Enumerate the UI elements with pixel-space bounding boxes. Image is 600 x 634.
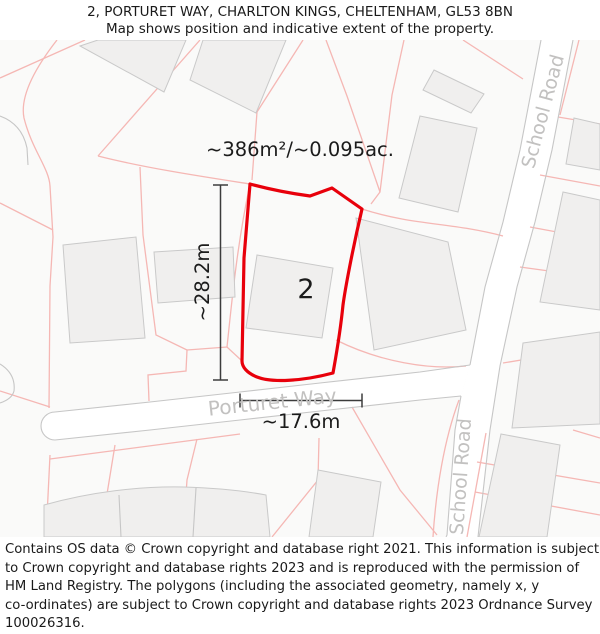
property-map: ~386m²/~0.095ac. 2 ~28.2m ~17.6m Porture…: [0, 40, 600, 537]
building: [63, 237, 145, 343]
building: [540, 192, 600, 310]
property-address-title: 2, PORTURET WAY, CHARLTON KINGS, CHELTEN…: [0, 0, 600, 21]
copyright-line: co-ordinates) are subject to Crown copyr…: [5, 597, 594, 616]
copyright-line: HM Land Registry. The polygons (includin…: [5, 578, 594, 597]
building: [479, 434, 560, 537]
map-subtitle: Map shows position and indicative extent…: [0, 21, 600, 38]
building: [44, 487, 270, 537]
map-title-header: 2, PORTURET WAY, CHARLTON KINGS, CHELTEN…: [0, 0, 600, 40]
plot-number-label: 2: [297, 274, 314, 305]
building: [356, 218, 466, 350]
copyright-footer: Contains OS data © Crown copyright and d…: [0, 537, 600, 625]
copyright-line: to Crown copyright and database rights 2…: [5, 560, 594, 579]
building: [190, 40, 286, 113]
building: [80, 40, 186, 92]
building: [566, 118, 600, 170]
copyright-line: Contains OS data © Crown copyright and d…: [5, 541, 594, 560]
plot-building: [246, 255, 333, 338]
map-canvas: ~386m²/~0.095ac. 2 ~28.2m ~17.6m Porture…: [0, 40, 600, 537]
building: [512, 332, 600, 428]
building: [423, 70, 484, 113]
building: [399, 116, 477, 212]
vertical-dimension-label: ~28.2m: [191, 243, 214, 322]
building: [309, 470, 381, 537]
area-label: ~386m²/~0.095ac.: [206, 138, 394, 161]
